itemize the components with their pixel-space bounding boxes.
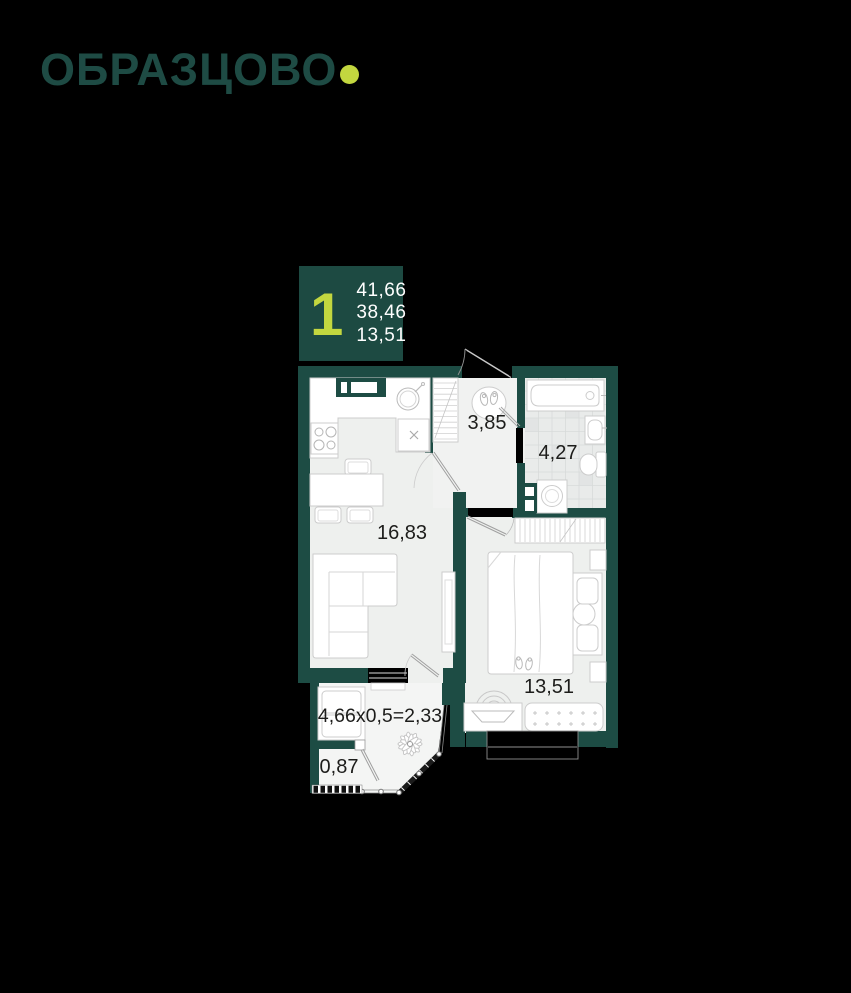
bath-sink-icon (585, 416, 607, 444)
living-window-icon (368, 668, 408, 690)
toilet-icon (580, 452, 606, 477)
wardrobe-icon (515, 518, 605, 543)
kitchen-sink-icon (398, 419, 429, 451)
logo: ОБРАЗЦОВО (40, 44, 359, 96)
stove-icon (311, 423, 338, 454)
nightstand-icon (590, 662, 606, 682)
desk-tv-icon (464, 703, 522, 731)
vent-shaft-icon (336, 378, 386, 397)
nightstand-icon (590, 550, 606, 570)
label-balcony: 4,66x0,5=2,33 (318, 705, 442, 727)
bedroom-window-icon (487, 731, 578, 759)
label-bathroom: 4,27 (539, 442, 578, 464)
label-hallway: 3,85 (468, 412, 507, 434)
label-balcony-small: 0,87 (320, 756, 359, 778)
ottoman-icon (525, 703, 603, 731)
floor-plan: 16,83 3,85 4,27 13,51 4,66x0,5=2,33 0,87 (298, 321, 618, 801)
washing-machine-icon (537, 480, 567, 513)
label-kitchen-living: 16,83 (377, 522, 427, 544)
hatched-wall-icon (312, 785, 362, 794)
tv-cabinet-icon (442, 572, 455, 652)
logo-dot-icon (340, 65, 359, 84)
bath-vent-icon (522, 483, 537, 513)
label-bedroom: 13,51 (524, 676, 574, 698)
hall-wardrobe-icon (433, 378, 458, 442)
area-total: 41,66 (356, 280, 406, 302)
bathtub-icon (527, 380, 606, 411)
logo-text: ОБРАЗЦОВО (40, 44, 337, 95)
entrance-door-icon (458, 349, 512, 378)
